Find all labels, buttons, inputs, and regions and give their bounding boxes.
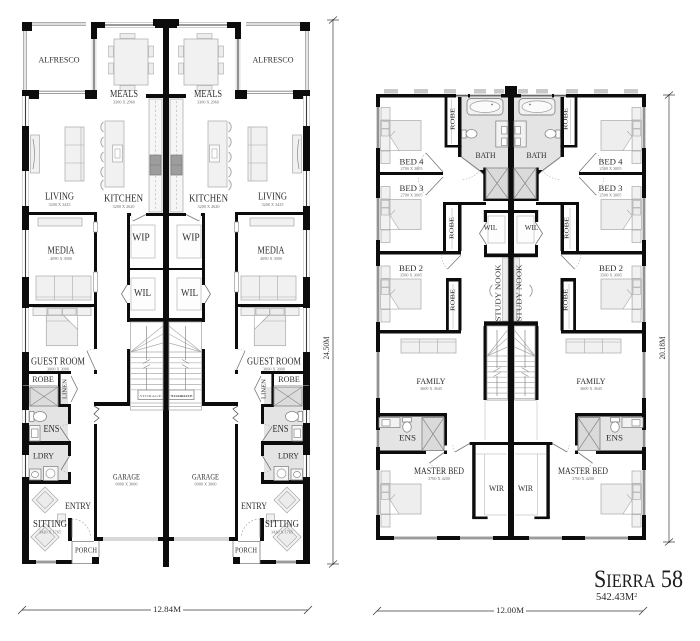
svg-text:ALFRESCO: ALFRESCO: [39, 55, 80, 65]
svg-text:3500 X 3005: 3500 X 3005: [600, 274, 622, 278]
svg-text:KITCHEN: KITCHEN: [104, 194, 143, 205]
svg-text:3600 X 3645: 3600 X 3645: [580, 387, 602, 391]
svg-text:2700 X 3005: 2700 X 3005: [401, 194, 423, 198]
svg-text:MEALS: MEALS: [110, 89, 138, 100]
svg-text:WIL: WIL: [134, 288, 151, 299]
svg-text:3420 X 1765: 3420 X 1765: [271, 531, 293, 535]
svg-text:ROBE: ROBE: [564, 288, 570, 311]
svg-text:ENS: ENS: [606, 434, 623, 443]
svg-text:ROBE: ROBE: [32, 375, 54, 384]
svg-text:STORAGE: STORAGE: [140, 394, 162, 398]
svg-text:12.00M: 12.00M: [496, 605, 524, 615]
svg-text:PORCH: PORCH: [75, 546, 97, 555]
svg-text:4090 X 3000: 4090 X 3000: [260, 257, 282, 261]
svg-text:WIP: WIP: [182, 233, 200, 244]
svg-text:3300 X 2960: 3300 X 2960: [197, 101, 219, 105]
svg-text:WIP: WIP: [132, 233, 150, 244]
svg-text:MASTER BED: MASTER BED: [558, 466, 608, 477]
svg-text:WIL: WIL: [525, 223, 539, 232]
svg-text:3000 X 3000: 3000 X 3000: [263, 368, 285, 372]
svg-text:ROBE: ROBE: [450, 216, 456, 239]
svg-text:BED 3: BED 3: [599, 183, 624, 193]
svg-text:GUEST ROOM: GUEST ROOM: [31, 357, 85, 368]
svg-text:BATH: BATH: [476, 150, 497, 160]
svg-text:WIR: WIR: [518, 483, 533, 493]
svg-text:PORCH: PORCH: [235, 546, 257, 555]
svg-text:ROBE: ROBE: [451, 288, 457, 311]
svg-text:3700 X 4200: 3700 X 4200: [572, 477, 594, 481]
svg-text:2500 X 3005: 2500 X 3005: [600, 194, 622, 198]
svg-text:MASTER BED: MASTER BED: [414, 466, 464, 477]
svg-text:STORAGE: STORAGE: [171, 394, 193, 398]
svg-text:LDRY: LDRY: [278, 451, 300, 461]
svg-text:LDRY: LDRY: [33, 451, 55, 461]
svg-text:KITCHEN: KITCHEN: [189, 194, 228, 205]
svg-text:FAMILY: FAMILY: [577, 376, 607, 386]
svg-text:LIVING: LIVING: [45, 192, 74, 203]
svg-text:ROBE: ROBE: [278, 375, 300, 384]
svg-text:2500 X 3005: 2500 X 3005: [600, 167, 622, 171]
svg-text:3600 X 3645: 3600 X 3645: [420, 387, 442, 391]
svg-text:ALFRESCO: ALFRESCO: [253, 55, 294, 65]
svg-text:2700 X 3005: 2700 X 3005: [401, 167, 423, 171]
svg-text:WIL: WIL: [484, 223, 498, 232]
svg-text:MEALS: MEALS: [194, 89, 222, 100]
svg-text:6000 X 3000: 6000 X 3000: [195, 483, 217, 487]
svg-text:3200 X 2620: 3200 X 2620: [113, 205, 135, 209]
svg-text:ENTRY: ENTRY: [241, 502, 267, 512]
svg-text:ENTRY: ENTRY: [65, 502, 91, 512]
svg-text:3300 X 2960: 3300 X 2960: [113, 101, 135, 105]
svg-text:FAMILY: FAMILY: [417, 376, 447, 386]
svg-text:WIL: WIL: [181, 288, 198, 299]
svg-text:STUDY NOOK: STUDY NOOK: [517, 264, 524, 321]
svg-text:3200 X 2620: 3200 X 2620: [198, 205, 220, 209]
svg-text:GARAGE: GARAGE: [113, 472, 140, 482]
svg-text:BED 4: BED 4: [400, 157, 425, 167]
svg-text:LINEN: LINEN: [63, 378, 69, 399]
svg-text:BED 2: BED 2: [399, 263, 423, 273]
svg-text:GARAGE: GARAGE: [192, 472, 219, 482]
svg-text:BED 3: BED 3: [400, 183, 425, 193]
svg-text:20.18M: 20.18M: [657, 336, 667, 359]
svg-text:LINEN: LINEN: [262, 378, 268, 399]
svg-text:3700 X 4200: 3700 X 4200: [428, 477, 450, 481]
svg-text:MEDIA: MEDIA: [48, 246, 76, 257]
svg-text:BED 4: BED 4: [599, 157, 624, 167]
svg-text:SITTING: SITTING: [265, 519, 299, 530]
svg-text:3000 X 3000: 3000 X 3000: [47, 368, 69, 372]
svg-text:STUDY NOOK: STUDY NOOK: [496, 264, 503, 321]
svg-text:ENS: ENS: [399, 434, 416, 443]
svg-text:3200 X 3425: 3200 X 3425: [262, 203, 284, 207]
svg-text:12.84M: 12.84M: [153, 604, 181, 614]
svg-text:3500 X 3005: 3500 X 3005: [400, 274, 422, 278]
svg-text:ENS: ENS: [44, 424, 60, 435]
svg-text:SITTING: SITTING: [33, 519, 67, 530]
svg-text:LIVING: LIVING: [258, 192, 287, 203]
svg-text:GUEST ROOM: GUEST ROOM: [247, 357, 301, 368]
svg-text:ROBE: ROBE: [565, 216, 571, 239]
svg-text:ROBE: ROBE: [451, 107, 457, 130]
svg-text:4090 X 3000: 4090 X 3000: [50, 257, 72, 261]
svg-text:3200 X 3425: 3200 X 3425: [49, 203, 71, 207]
svg-text:ROBE: ROBE: [564, 107, 570, 130]
svg-text:ENS: ENS: [273, 424, 289, 435]
svg-text:BED 2: BED 2: [599, 263, 623, 273]
svg-text:6000 X 3000: 6000 X 3000: [116, 483, 138, 487]
svg-text:WIR: WIR: [489, 483, 504, 493]
svg-text:24.50M: 24.50M: [321, 336, 331, 359]
svg-text:542.43M2: 542.43M2: [596, 592, 637, 603]
svg-text:MEDIA: MEDIA: [258, 246, 286, 257]
svg-text:BATH: BATH: [527, 150, 548, 160]
svg-text:3420 X 1765: 3420 X 1765: [39, 531, 61, 535]
